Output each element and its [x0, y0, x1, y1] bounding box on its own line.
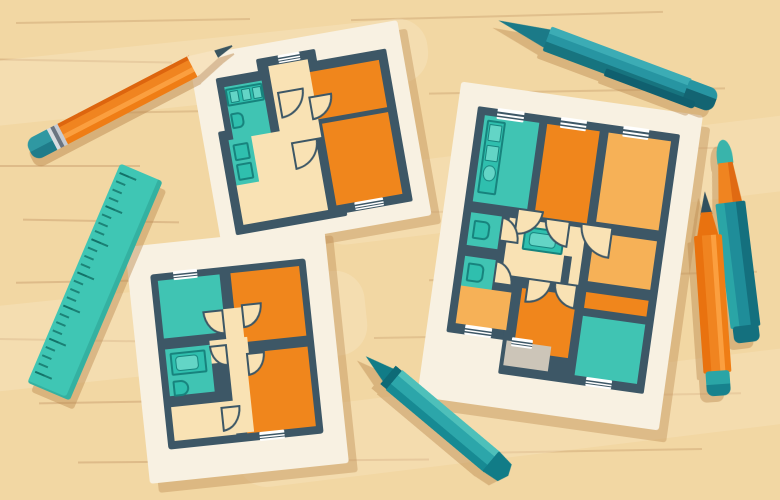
floorplan-sheet-bottom-left [125, 226, 349, 484]
floorplan-sheet-right [417, 82, 703, 431]
fixture-sink [230, 112, 245, 129]
room-teal-br [574, 316, 645, 384]
fixture-closet-box [236, 162, 255, 182]
fixture-toilet [466, 263, 485, 284]
window [259, 430, 285, 441]
room-bedroom-bl [456, 285, 512, 330]
grain-line [16, 18, 250, 24]
fixture-bathtub-inner [174, 355, 199, 371]
fixture-closet-box [232, 142, 251, 162]
floor-plan-small-top [207, 37, 414, 236]
fixture-counter-seg [241, 88, 252, 101]
room-living-br [322, 112, 402, 206]
floor-plans-desk-illustration [0, 0, 780, 500]
marker-orange-end-cap [705, 370, 731, 397]
room-bedroom-tr [596, 133, 671, 231]
floor-plan-large-right [440, 106, 680, 404]
fixture-toilet [472, 220, 491, 241]
marker-orange-tip [699, 191, 713, 215]
fixture-counter-seg [488, 124, 502, 142]
fixture-counter-seg [229, 90, 240, 103]
floor-plan-small-bottom [150, 258, 324, 449]
marker-teal-end-cap [732, 324, 760, 344]
fixture-counter-seg [485, 144, 499, 162]
